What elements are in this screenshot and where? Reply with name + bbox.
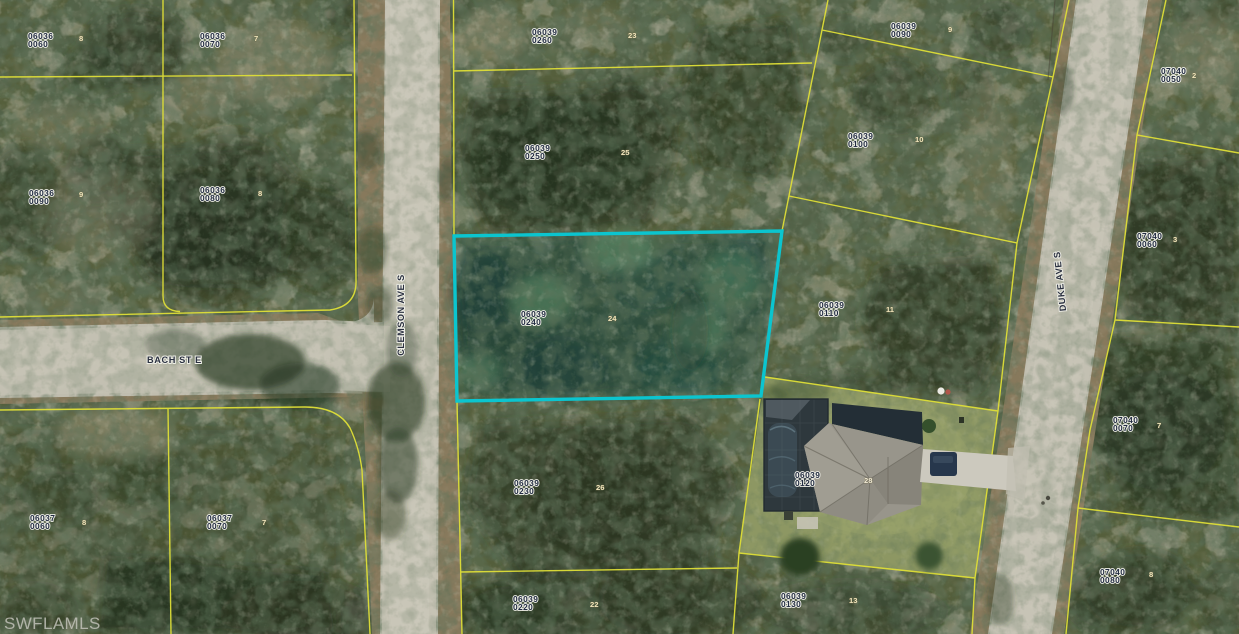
svg-text:SWFLAMLS: SWFLAMLS [4,614,101,633]
svg-text:0120: 0120 [795,478,815,488]
svg-text:28: 28 [864,476,872,485]
svg-text:CLEMSON AVE S: CLEMSON AVE S [396,274,406,356]
svg-text:0090: 0090 [891,29,911,39]
svg-text:24: 24 [608,314,617,323]
svg-text:2: 2 [1192,71,1196,80]
svg-text:0060: 0060 [30,521,50,531]
svg-text:0220: 0220 [513,602,533,612]
svg-text:BACH ST E: BACH ST E [147,355,202,365]
svg-text:23: 23 [628,31,636,40]
svg-text:0070: 0070 [200,39,220,49]
svg-text:26: 26 [596,483,604,492]
svg-text:0080: 0080 [1100,575,1120,585]
svg-text:8: 8 [79,34,83,43]
svg-text:11: 11 [886,305,895,314]
svg-text:0080: 0080 [200,193,220,203]
svg-text:0100: 0100 [848,139,868,149]
svg-text:3: 3 [1173,235,1177,244]
svg-text:0260: 0260 [532,35,552,45]
svg-text:25: 25 [621,148,630,157]
svg-text:7: 7 [1157,421,1161,430]
svg-text:9: 9 [79,190,83,199]
svg-text:0230: 0230 [514,486,534,496]
svg-text:0060: 0060 [1137,239,1157,249]
svg-text:7: 7 [254,34,258,43]
svg-text:0090: 0090 [29,196,49,206]
svg-text:0050: 0050 [1161,74,1181,84]
svg-text:10: 10 [915,135,923,144]
svg-text:9: 9 [948,25,952,34]
svg-text:0070: 0070 [1113,423,1133,433]
svg-text:8: 8 [1149,570,1153,579]
svg-text:0130: 0130 [781,599,801,609]
svg-text:0110: 0110 [819,308,839,318]
svg-text:13: 13 [849,596,857,605]
svg-text:22: 22 [590,600,598,609]
svg-text:0060: 0060 [28,39,48,49]
svg-text:0240: 0240 [521,317,541,327]
svg-text:0070: 0070 [207,521,227,531]
svg-text:0250: 0250 [525,151,545,161]
svg-text:8: 8 [82,518,86,527]
svg-text:8: 8 [258,189,262,198]
svg-text:7: 7 [262,518,266,527]
